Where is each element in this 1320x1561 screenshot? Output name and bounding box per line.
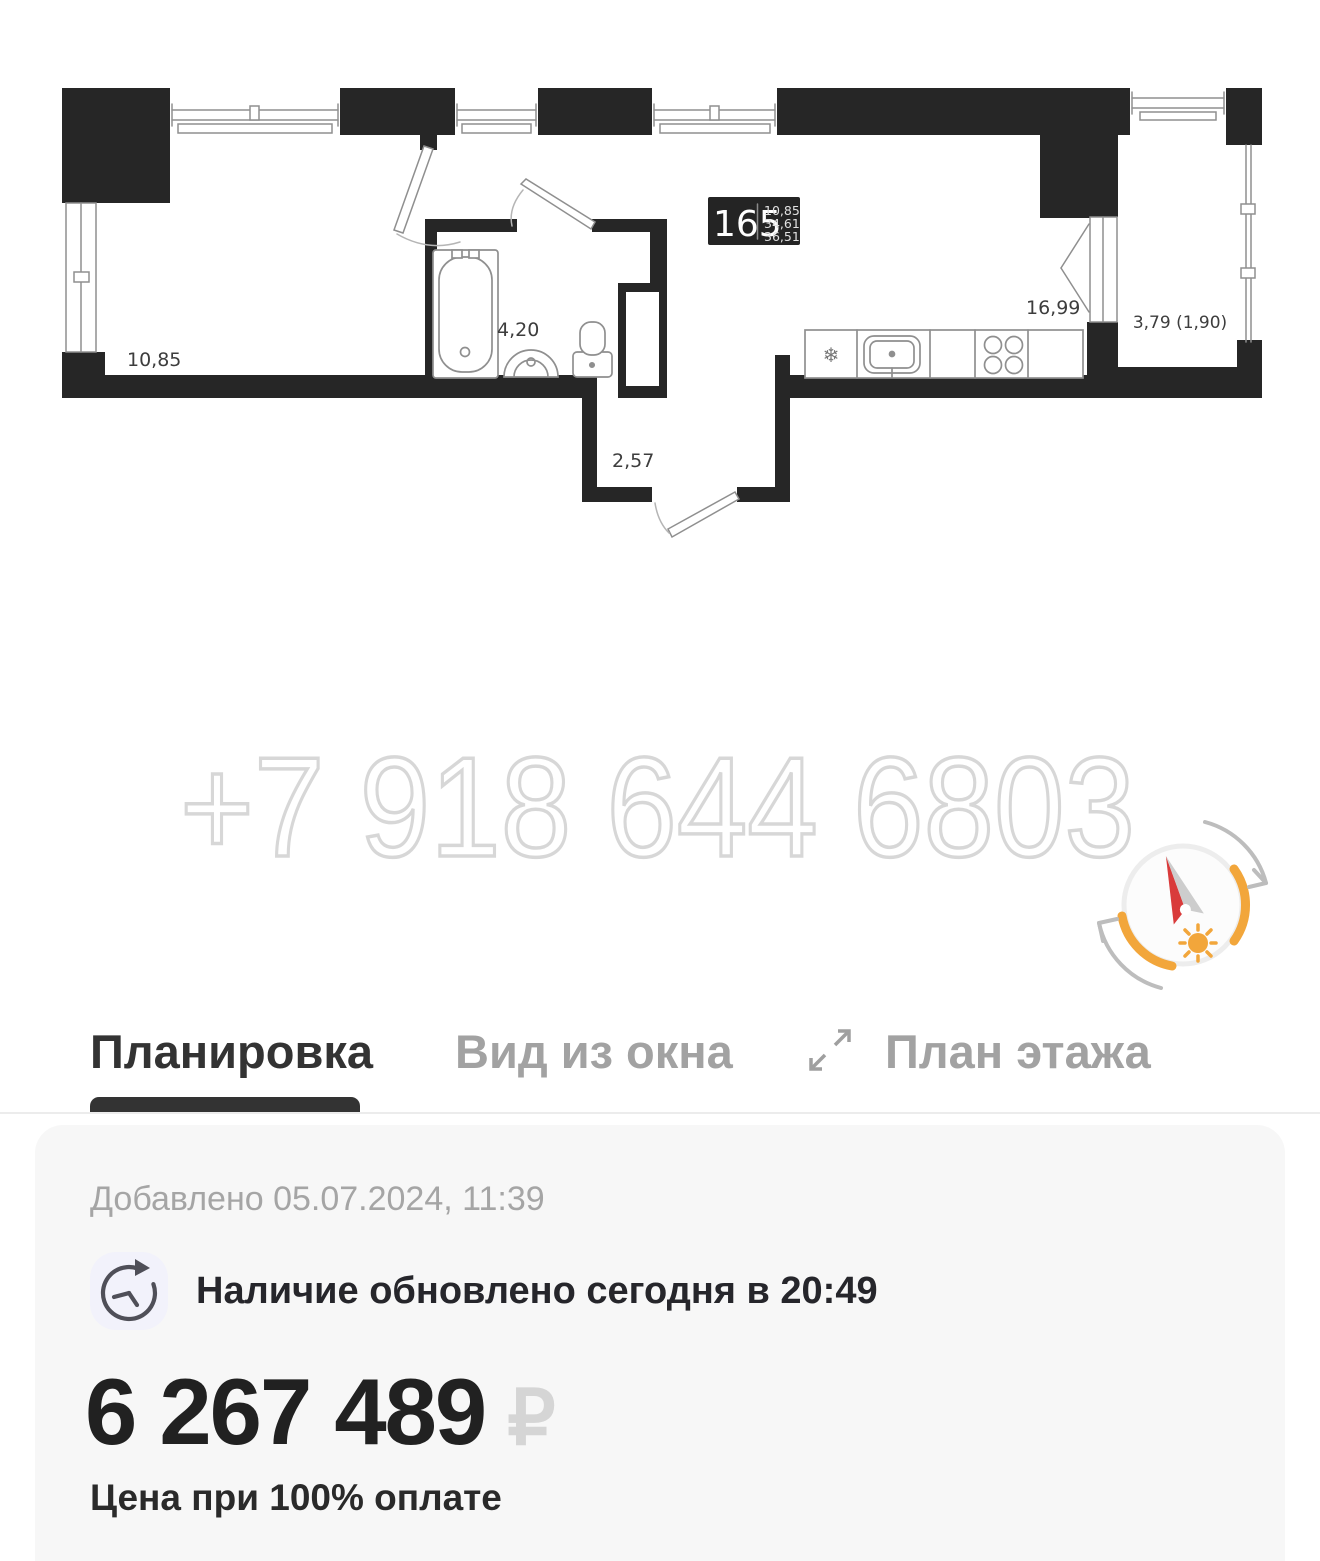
toilet-icon	[573, 322, 612, 377]
watermark-phone: +7 918 644 6803	[180, 728, 1135, 887]
bathtub-icon	[433, 250, 498, 378]
entrance-door	[655, 492, 739, 537]
expand-arrows-icon[interactable]	[806, 1026, 854, 1074]
tab-layout[interactable]: Планировка	[90, 1026, 373, 1078]
unit-info-box: 165 10,85 34,61 36,51	[708, 197, 800, 245]
price-card: Добавлено 05.07.2024, 11:39 Наличие обно…	[35, 1125, 1285, 1561]
history-clock-icon	[90, 1252, 168, 1330]
bathroom-door	[511, 179, 595, 229]
currency-ruble: ₽	[507, 1381, 555, 1457]
listing-page: ❄ 10,85 4,20 2,57 16,99 3,79 (1,90) 165 …	[0, 0, 1320, 1561]
tabs-divider	[0, 1112, 1320, 1114]
sink-icon	[504, 350, 558, 377]
unit-area-total: 36,51	[764, 229, 800, 244]
price-row: 6 267 489 ₽	[85, 1365, 556, 1459]
added-date: Добавлено 05.07.2024, 11:39	[90, 1180, 545, 1219]
label-kitchen-area: 16,99	[1026, 297, 1080, 319]
price-value: 6 267 489	[85, 1365, 485, 1459]
window-left	[66, 203, 96, 352]
floor-plan-image: ❄ 10,85 4,20 2,57 16,99 3,79 (1,90) 165 …	[0, 0, 1320, 995]
history-clock-chip	[90, 1252, 168, 1330]
fridge-icon: ❄	[823, 343, 840, 367]
availability-text: Наличие обновлено сегодня в 20:49	[196, 1270, 878, 1313]
price-note: Цена при 100% оплате	[90, 1477, 502, 1519]
label-bathroom-area: 4,20	[497, 319, 539, 341]
kitchen-counter	[805, 330, 1083, 378]
tab-floor-plan[interactable]: План этажа	[885, 1026, 1151, 1078]
sun-icon	[1180, 925, 1216, 961]
availability-row: Наличие обновлено сегодня в 20:49	[90, 1252, 878, 1330]
active-tab-indicator	[90, 1097, 360, 1113]
balcony-glazing	[1241, 145, 1255, 342]
tab-window-view[interactable]: Вид из окна	[455, 1026, 733, 1078]
label-balcony-area: 3,79 (1,90)	[1133, 313, 1227, 333]
label-room-area: 10,85	[127, 349, 181, 371]
label-hall-area: 2,57	[612, 450, 654, 472]
